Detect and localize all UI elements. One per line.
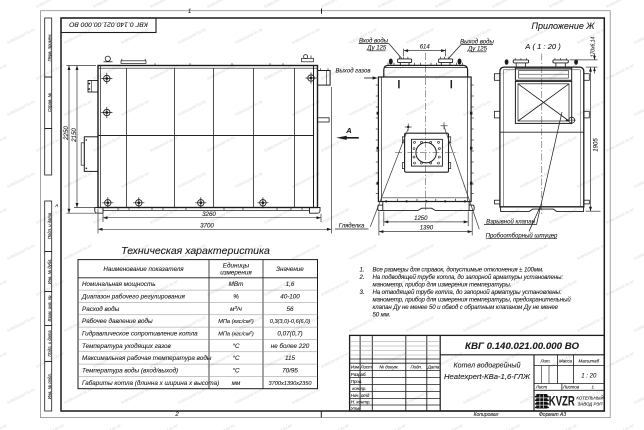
svg-text:м3/ч: м3/ч <box>230 305 242 313</box>
svg-text:kotelzavod-kv.kz: kotelzavod-kv.kz <box>0 206 9 225</box>
svg-text:kotelzavod-kv.kz: kotelzavod-kv.kz <box>120 26 150 45</box>
svg-text:°С: °С <box>232 342 240 350</box>
svg-text:Масштаб: Масштаб <box>579 358 600 363</box>
svg-text:kotelzavod-kv.kz: kotelzavod-kv.kz <box>6 26 36 45</box>
svg-text:kotelzavod-kv.kz: kotelzavod-kv.kz <box>320 278 350 297</box>
svg-text:°С: °С <box>232 354 240 362</box>
svg-text:Рабочее давление воды: Рабочее давление воды <box>82 317 153 325</box>
svg-text:0,3(3,0)-0,6(6,0): 0,3(3,0)-0,6(6,0) <box>270 319 311 325</box>
svg-text:2: 2 <box>174 412 179 418</box>
svg-text:Расход воды: Расход воды <box>82 305 120 313</box>
svg-text:kotelzavod-kv.kz: kotelzavod-kv.kz <box>377 0 407 9</box>
svg-text:kotelzavod-kv.kz: kotelzavod-kv.kz <box>234 98 264 117</box>
svg-text:Лист: Лист <box>535 385 548 390</box>
svg-text:kotelzavod-kv.kz: kotelzavod-kv.kz <box>320 206 350 225</box>
svg-text:манометр, прибор для измерения: манометр, прибор для измерения температу… <box>373 282 512 289</box>
svg-text:kotelzavod-kv.kz: kotelzavod-kv.kz <box>491 422 521 430</box>
svg-text:kotelzavod-kv.kz: kotelzavod-kv.kz <box>519 242 549 261</box>
svg-text:Формат А3: Формат А3 <box>539 412 567 418</box>
svg-text:Изм: Изм <box>351 365 359 370</box>
svg-text:Нач. отд: Нач. отд <box>351 393 370 398</box>
svg-text:Перв. примен.: Перв. примен. <box>47 34 52 62</box>
svg-text:kotelzavod-kv.kz: kotelzavod-kv.kz <box>0 134 9 153</box>
svg-text:Дата: Дата <box>427 365 440 370</box>
svg-text:kotelzavod-kv.kz: kotelzavod-kv.kz <box>206 0 236 9</box>
svg-text:kotelzavod-kv.kz: kotelzavod-kv.kz <box>605 350 635 369</box>
svg-text:Листов: Листов <box>562 385 580 390</box>
svg-text:kotelzavod-kv.kz: kotelzavod-kv.kz <box>348 170 378 189</box>
svg-text:Справ. №: Справ. № <box>47 93 52 112</box>
svg-text:А ( 1 : 20 ): А ( 1 : 20 ) <box>524 42 561 51</box>
svg-text:Лист: Лист <box>360 365 373 370</box>
svg-text:Температура воды (вход/выход): Температура воды (вход/выход) <box>82 366 178 374</box>
svg-text:kotelzavod-kv.kz: kotelzavod-kv.kz <box>92 422 122 430</box>
svg-text:kotelzavod-kv.kz: kotelzavod-kv.kz <box>291 242 321 261</box>
svg-text:Взам. инв. №: Взам. инв. № <box>47 295 52 321</box>
svg-text:kotelzavod-kv.kz: kotelzavod-kv.kz <box>605 422 635 430</box>
svg-text:3700х1390х2350: 3700х1390х2350 <box>269 381 313 387</box>
svg-text:1,6: 1,6 <box>286 281 295 288</box>
svg-text:А: А <box>345 126 351 135</box>
svg-text:kotelzavod-kv.kz: kotelzavod-kv.kz <box>405 314 435 333</box>
svg-text:Номинальная мощность: Номинальная мощность <box>82 281 156 288</box>
svg-text:kotelzavod-kv.kz: kotelzavod-kv.kz <box>548 422 578 430</box>
svg-text:Heatexpert-КВа-1,6-ГЛЖ: Heatexpert-КВа-1,6-ГЛЖ <box>444 372 531 381</box>
svg-text:kotelzavod-kv.kz: kotelzavod-kv.kz <box>462 98 492 117</box>
svg-text:Подп. и дата: Подп. и дата <box>47 330 52 357</box>
svg-text:Габариты котла (длинна х ширин: Габариты котла (длинна х ширина х высота… <box>82 379 219 387</box>
svg-text:2150: 2150 <box>71 128 78 143</box>
svg-text:40-100: 40-100 <box>280 294 300 301</box>
svg-text:Н. контр.: Н. контр. <box>351 400 371 405</box>
svg-text:Максимальная рабочая температу: Максимальная рабочая температура воды <box>82 354 212 362</box>
svg-text:kotelzavod-kv.kz: kotelzavod-kv.kz <box>605 0 635 9</box>
svg-text:50 мм.: 50 мм. <box>373 312 391 319</box>
svg-text:1250: 1250 <box>414 216 428 222</box>
svg-text:МПа (кгс/см2): МПа (кгс/см2) <box>218 318 254 325</box>
svg-text:Значение: Значение <box>276 266 304 273</box>
svg-text:не более 220: не более 220 <box>271 342 310 350</box>
svg-text:измерения: измерения <box>220 270 252 277</box>
svg-text:kotelzavod-kv.kz: kotelzavod-kv.kz <box>63 26 93 45</box>
svg-text:kotelzavod-kv.kz: kotelzavod-kv.kz <box>263 0 293 9</box>
svg-text:МВт: МВт <box>229 281 244 288</box>
svg-text:Инв. № подл.: Инв. № подл. <box>47 373 52 399</box>
svg-text:kotelzavod-kv.kz: kotelzavod-kv.kz <box>177 26 207 45</box>
svg-text:1 : 20: 1 : 20 <box>581 373 597 379</box>
svg-text:kotelzavod-kv.kz: kotelzavod-kv.kz <box>462 386 492 405</box>
svg-text:На отводящей трубе котла, до з: На отводящей трубе котла, до запорной ар… <box>373 289 562 296</box>
svg-text:Разраб.: Разраб. <box>351 372 367 377</box>
svg-text:kotelzavod-kv.kz: kotelzavod-kv.kz <box>320 350 350 369</box>
svg-text:2.: 2. <box>359 274 365 281</box>
svg-text:3700: 3700 <box>200 222 214 229</box>
svg-text:kotelzavod-kv.kz: kotelzavod-kv.kz <box>434 0 464 9</box>
svg-text:Гидравлическое сопротивление к: Гидравлическое сопротивление котла <box>82 330 198 338</box>
svg-text:Выход газов: Выход газов <box>336 68 371 74</box>
svg-text:Подп.: Подп. <box>410 365 422 370</box>
svg-text:kotelzavod-kv.kz: kotelzavod-kv.kz <box>149 206 179 225</box>
svg-text:Утв.: Утв. <box>351 406 361 411</box>
svg-text:kotelzavod-kv.kz: kotelzavod-kv.kz <box>177 170 207 189</box>
svg-text:Приложение Ж: Приложение Ж <box>532 21 596 31</box>
svg-text:kotelzavod-kv.kz: kotelzavod-kv.kz <box>177 98 207 117</box>
svg-text:kotelzavod-kv.kz: kotelzavod-kv.kz <box>491 62 521 81</box>
svg-text:На подводящей трубе котла, до: На подводящей трубе котла, до запорной а… <box>373 274 564 281</box>
svg-text:Пробоотборный штуцер: Пробоотборный штуцер <box>486 232 558 239</box>
svg-text:kotelzavod-kv.kz: kotelzavod-kv.kz <box>605 62 635 81</box>
svg-text:70/95: 70/95 <box>282 367 298 374</box>
svg-text:kotelzavod-kv.kz: kotelzavod-kv.kz <box>263 206 293 225</box>
svg-text:КВГ 0.140.021.00.000 ВО: КВГ 0.140.021.00.000 ВО <box>465 341 579 351</box>
svg-text:kotelzavod-kv.kz: kotelzavod-kv.kz <box>548 134 578 153</box>
svg-text:клапан Ду не менее 50 и обвод: клапан Ду не менее 50 и обвод с обратным… <box>373 304 559 311</box>
svg-text:3.: 3. <box>360 289 365 296</box>
svg-text:kotelzavod-kv.kz: kotelzavod-kv.kz <box>348 98 378 117</box>
svg-text:170х6,14: 170х6,14 <box>590 36 596 57</box>
svg-text:kotelzavod-kv.kz: kotelzavod-kv.kz <box>405 98 435 117</box>
svg-text:kotelzavod-kv.kz: kotelzavod-kv.kz <box>291 26 321 45</box>
svg-text:kotelzavod-kv.kz: kotelzavod-kv.kz <box>0 62 9 81</box>
svg-text:kotelzavod-kv.kz: kotelzavod-kv.kz <box>234 170 264 189</box>
svg-text:kotelzavod-kv.kz: kotelzavod-kv.kz <box>0 350 9 369</box>
svg-text:kotelzavod-kv.kz: kotelzavod-kv.kz <box>633 314 644 333</box>
svg-text:kotelzavod-kv.kz: kotelzavod-kv.kz <box>92 0 122 9</box>
svg-text:kotelzavod-kv.kz: kotelzavod-kv.kz <box>633 170 644 189</box>
svg-text:kotelzavod-kv.kz: kotelzavod-kv.kz <box>63 98 93 117</box>
svg-text:kotelzavod-kv.kz: kotelzavod-kv.kz <box>263 134 293 153</box>
svg-text:kotelzavod-kv.kz: kotelzavod-kv.kz <box>0 278 9 297</box>
svg-text:kotelzavod-kv.kz: kotelzavod-kv.kz <box>633 98 644 117</box>
svg-text:kotelzavod-kv.kz: kotelzavod-kv.kz <box>149 0 179 9</box>
svg-text:56: 56 <box>286 306 294 313</box>
svg-text:kotelzavod-kv.kz: kotelzavod-kv.kz <box>63 170 93 189</box>
svg-text:Лит.: Лит. <box>540 358 551 363</box>
svg-text:МПа (кгс/см2): МПа (кгс/см2) <box>218 331 254 338</box>
svg-text:kotelzavod-kv.kz: kotelzavod-kv.kz <box>462 242 492 261</box>
svg-text:1390: 1390 <box>420 226 434 232</box>
svg-text:kotelzavod-kv.kz: kotelzavod-kv.kz <box>605 206 635 225</box>
svg-text:kotelzavod-kv.kz: kotelzavod-kv.kz <box>633 242 644 261</box>
svg-text:kotelzavod-kv.kz: kotelzavod-kv.kz <box>519 314 549 333</box>
svg-text:ЗАВОД РЭП: ЗАВОД РЭП <box>578 402 604 407</box>
svg-text:kotelzavod-kv.kz: kotelzavod-kv.kz <box>633 386 644 405</box>
svg-text:kotelzavod-kv.kz: kotelzavod-kv.kz <box>263 422 293 430</box>
svg-text:kotelzavod-kv.kz: kotelzavod-kv.kz <box>0 0 9 9</box>
svg-text:kotelzavod-kv.kz: kotelzavod-kv.kz <box>35 422 65 430</box>
svg-text:Котел водогрейный: Котел водогрейный <box>454 361 521 370</box>
svg-text:КВГ 0.140.021.00.000 ВО: КВГ 0.140.021.00.000 ВО <box>68 21 147 28</box>
svg-text:kotelzavod-kv.kz: kotelzavod-kv.kz <box>462 170 492 189</box>
svg-text:kotelzavod-kv.kz: kotelzavod-kv.kz <box>405 386 435 405</box>
svg-text:kotelzavod-kv.kz: kotelzavod-kv.kz <box>6 170 36 189</box>
svg-text:Подп. и дата: Подп. и дата <box>47 212 52 239</box>
svg-text:kotelzavod-kv.kz: kotelzavod-kv.kz <box>491 0 521 9</box>
svg-text:kotelzavod-kv.kz: kotelzavod-kv.kz <box>0 422 9 430</box>
svg-text:kotelzavod-kv.kz: kotelzavod-kv.kz <box>120 98 150 117</box>
svg-text:614: 614 <box>420 44 431 50</box>
svg-text:kotelzavod-kv.kz: kotelzavod-kv.kz <box>63 242 93 261</box>
svg-text:kotelzavod-kv.kz: kotelzavod-kv.kz <box>605 278 635 297</box>
svg-text:Копировал: Копировал <box>474 412 499 418</box>
svg-text:kotelzavod-kv.kz: kotelzavod-kv.kz <box>6 242 36 261</box>
svg-text:kotelzavod-kv.kz: kotelzavod-kv.kz <box>149 134 179 153</box>
svg-text:kotelzavod-kv.kz: kotelzavod-kv.kz <box>605 134 635 153</box>
svg-text:kotelzavod-kv.kz: kotelzavod-kv.kz <box>576 314 606 333</box>
svg-text:А: А <box>54 203 58 208</box>
svg-text:Пров.: Пров. <box>351 379 363 384</box>
svg-text:Все размеры для справок, допус: Все размеры для справок, допустимые откл… <box>373 267 544 274</box>
svg-text:3260: 3260 <box>202 211 216 218</box>
svg-text:1905: 1905 <box>593 138 599 152</box>
svg-text:мм: мм <box>232 380 241 387</box>
svg-text:kotelzavod-kv.kz: kotelzavod-kv.kz <box>149 422 179 430</box>
svg-text:Инв. № дубл.: Инв. № дубл. <box>47 259 52 285</box>
svg-text:0,07(0,7): 0,07(0,7) <box>277 331 302 338</box>
svg-text:KVZR: KVZR <box>549 393 575 409</box>
svg-text:2250: 2250 <box>63 126 70 141</box>
svg-text:1: 1 <box>591 385 594 390</box>
svg-text:kotelzavod-kv.kz: kotelzavod-kv.kz <box>576 98 606 117</box>
svg-text:kotelzavod-kv.kz: kotelzavod-kv.kz <box>377 422 407 430</box>
svg-text:1: 1 <box>188 9 191 15</box>
svg-text:kotelzavod-kv.kz: kotelzavod-kv.kz <box>320 0 350 9</box>
svg-text:kotelzavod-kv.kz: kotelzavod-kv.kz <box>462 314 492 333</box>
svg-text:Масса: Масса <box>559 358 573 363</box>
svg-text:манометр, прибор для измерения: манометр, прибор для измерения температу… <box>373 297 572 304</box>
svg-text:kotelzavod-kv.kz: kotelzavod-kv.kz <box>120 170 150 189</box>
svg-text:КОТЕЛЬНЫЙ: КОТЕЛЬНЫЙ <box>576 395 604 400</box>
svg-text:kotelzavod-kv.kz: kotelzavod-kv.kz <box>320 422 350 430</box>
svg-text:Техническая характеристика: Техническая характеристика <box>121 245 270 257</box>
svg-text:115: 115 <box>285 355 296 362</box>
svg-text:kotelzavod-kv.kz: kotelzavod-kv.kz <box>633 26 644 45</box>
svg-text:kotelzavod-kv.kz: kotelzavod-kv.kz <box>206 134 236 153</box>
svg-text:%: % <box>233 294 239 301</box>
svg-text:kotelzavod-kv.kz: kotelzavod-kv.kz <box>405 242 435 261</box>
svg-text:kotelzavod-kv.kz: kotelzavod-kv.kz <box>6 314 36 333</box>
svg-text:kotelzavod-kv.kz: kotelzavod-kv.kz <box>348 242 378 261</box>
svg-text:kotelzavod-kv.kz: kotelzavod-kv.kz <box>6 98 36 117</box>
svg-text:kotelzavod-kv.kz: kotelzavod-kv.kz <box>234 26 264 45</box>
svg-text:Диапазон рабочего регулировани: Диапазон рабочего регулирования <box>81 293 185 301</box>
svg-text:kotelzavod-kv.kz: kotelzavod-kv.kz <box>576 242 606 261</box>
svg-text:kotelzavod-kv.kz: kotelzavod-kv.kz <box>434 422 464 430</box>
svg-text:Температура уходящих газов: Температура уходящих газов <box>82 342 171 350</box>
svg-text:1.: 1. <box>360 267 365 274</box>
svg-text:kotelzavod-kv.kz: kotelzavod-kv.kz <box>491 134 521 153</box>
svg-text:kotelzavod-kv.kz: kotelzavod-kv.kz <box>206 422 236 430</box>
svg-text:kotelzavod-kv.kz: kotelzavod-kv.kz <box>548 0 578 9</box>
svg-text:kotelzavod-kv.kz: kotelzavod-kv.kz <box>35 0 65 9</box>
svg-text:kotelzavod-kv.kz: kotelzavod-kv.kz <box>405 170 435 189</box>
svg-text:Единицы: Единицы <box>223 261 250 269</box>
svg-text:№ докум.: № докум. <box>379 365 398 370</box>
svg-text:kotelzavod-kv.kz: kotelzavod-kv.kz <box>6 386 36 405</box>
svg-text:Наименование показателя: Наименование показателя <box>103 266 184 273</box>
svg-text:kotelzavod-kv.kz: kotelzavod-kv.kz <box>405 26 435 45</box>
svg-text:kotelzavod-kv.kz: kotelzavod-kv.kz <box>576 170 606 189</box>
svg-text:°С: °С <box>232 366 240 374</box>
svg-text:контр.: контр. <box>352 386 366 391</box>
